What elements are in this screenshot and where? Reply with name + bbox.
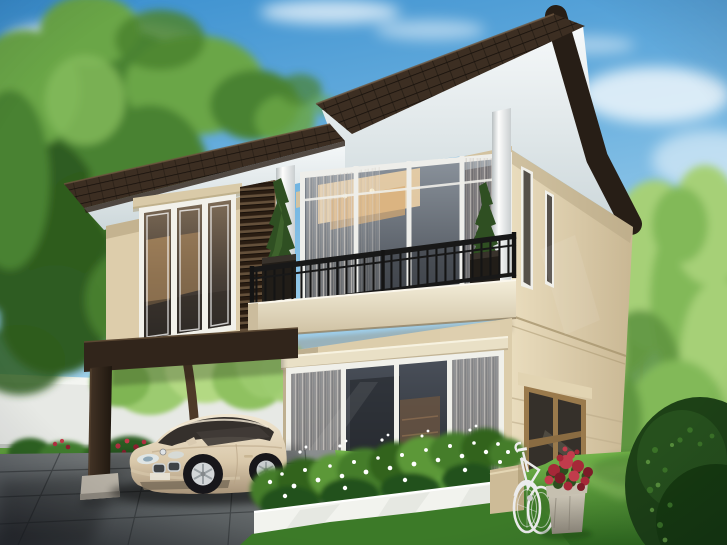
vignette-overlay	[0, 0, 727, 545]
house-render-canvas	[0, 0, 727, 545]
rendered-photo	[0, 0, 727, 545]
